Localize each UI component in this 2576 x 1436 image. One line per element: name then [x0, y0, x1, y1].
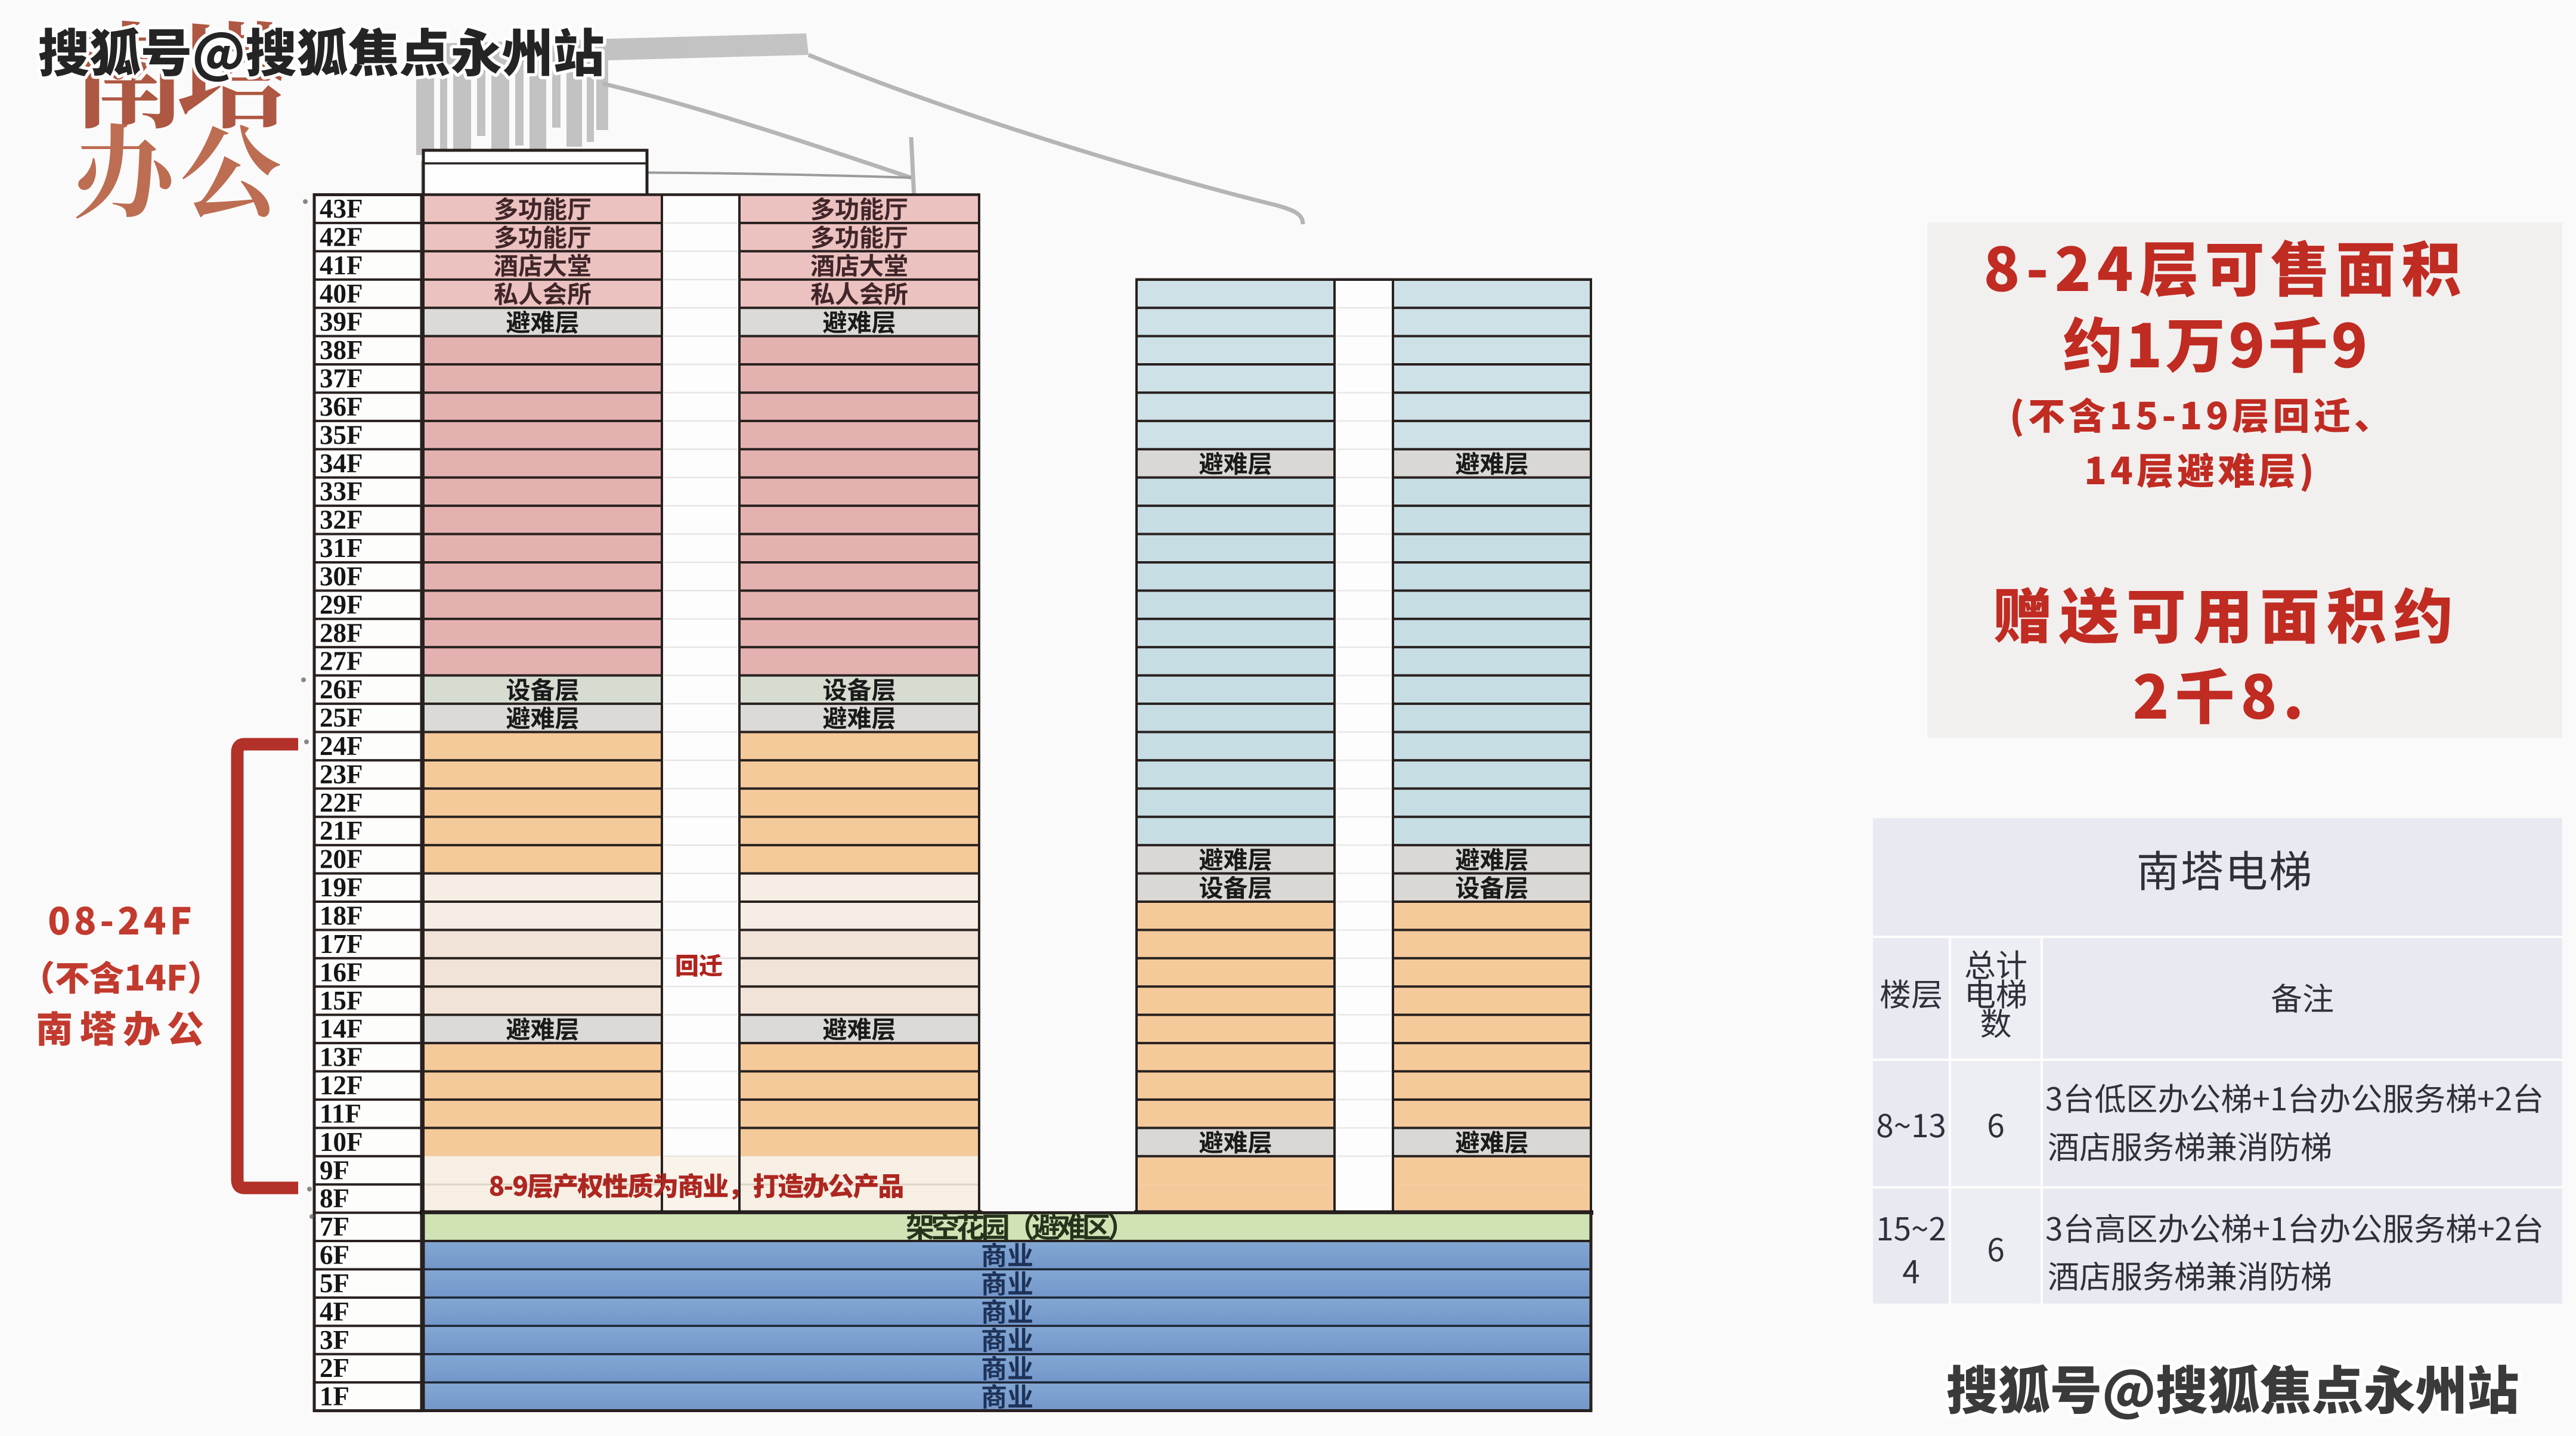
svg-text:29F: 29F [320, 590, 363, 620]
svg-text:22F: 22F [320, 788, 363, 818]
svg-text:17F: 17F [320, 929, 363, 959]
svg-text:21F: 21F [320, 816, 363, 846]
svg-text:20F: 20F [320, 844, 363, 874]
svg-text:38F: 38F [320, 335, 363, 365]
svg-text:41F: 41F [320, 250, 363, 280]
svg-text:43F: 43F [320, 194, 363, 224]
svg-text:33F: 33F [320, 476, 363, 506]
svg-text:7F: 7F [320, 1212, 349, 1242]
svg-text:28F: 28F [320, 618, 363, 648]
svg-text:4F: 4F [320, 1296, 349, 1326]
svg-text:27F: 27F [320, 646, 363, 676]
svg-text:10F: 10F [320, 1127, 363, 1157]
svg-text:5F: 5F [320, 1268, 349, 1298]
svg-text:12F: 12F [320, 1070, 363, 1100]
svg-text:40F: 40F [320, 278, 363, 308]
svg-text:24F: 24F [320, 731, 363, 761]
svg-text:25F: 25F [320, 703, 363, 733]
svg-text:31F: 31F [320, 533, 363, 563]
svg-text:13F: 13F [320, 1042, 363, 1072]
svg-text:14F: 14F [320, 1014, 363, 1044]
svg-text:35F: 35F [320, 420, 363, 450]
svg-text:23F: 23F [320, 759, 363, 789]
svg-text:18F: 18F [320, 901, 363, 931]
svg-text:36F: 36F [320, 392, 363, 422]
svg-text:9F: 9F [320, 1155, 349, 1185]
svg-text:8F: 8F [320, 1184, 349, 1214]
svg-text:30F: 30F [320, 562, 363, 592]
svg-text:19F: 19F [320, 872, 363, 902]
svg-text:16F: 16F [320, 957, 363, 987]
svg-text:11F: 11F [320, 1098, 361, 1128]
svg-text:34F: 34F [320, 448, 363, 478]
svg-text:37F: 37F [320, 364, 363, 394]
svg-text:32F: 32F [320, 505, 363, 535]
svg-text:26F: 26F [320, 674, 363, 704]
svg-text:2F: 2F [320, 1353, 349, 1383]
svg-text:39F: 39F [320, 307, 363, 337]
svg-text:15F: 15F [320, 986, 363, 1016]
svg-text:1F: 1F [320, 1382, 349, 1412]
svg-text:6F: 6F [320, 1240, 349, 1270]
svg-text:42F: 42F [320, 222, 363, 252]
svg-text:3F: 3F [320, 1325, 349, 1355]
